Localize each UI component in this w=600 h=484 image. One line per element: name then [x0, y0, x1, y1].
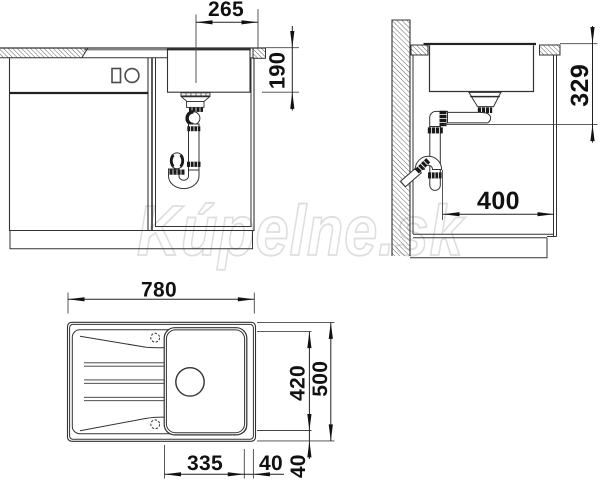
- svg-text:780: 780: [141, 278, 177, 301]
- svg-text:Kúpelne.sk: Kúpelne.sk: [137, 192, 466, 271]
- svg-text:335: 335: [187, 452, 223, 475]
- svg-text:420: 420: [287, 365, 310, 401]
- svg-text:329: 329: [566, 64, 594, 107]
- svg-text:40: 40: [259, 452, 283, 475]
- svg-text:400: 400: [477, 187, 520, 215]
- svg-text:500: 500: [309, 361, 332, 397]
- svg-text:40: 40: [287, 454, 310, 478]
- svg-text:190: 190: [265, 52, 290, 89]
- svg-text:265: 265: [208, 0, 244, 21]
